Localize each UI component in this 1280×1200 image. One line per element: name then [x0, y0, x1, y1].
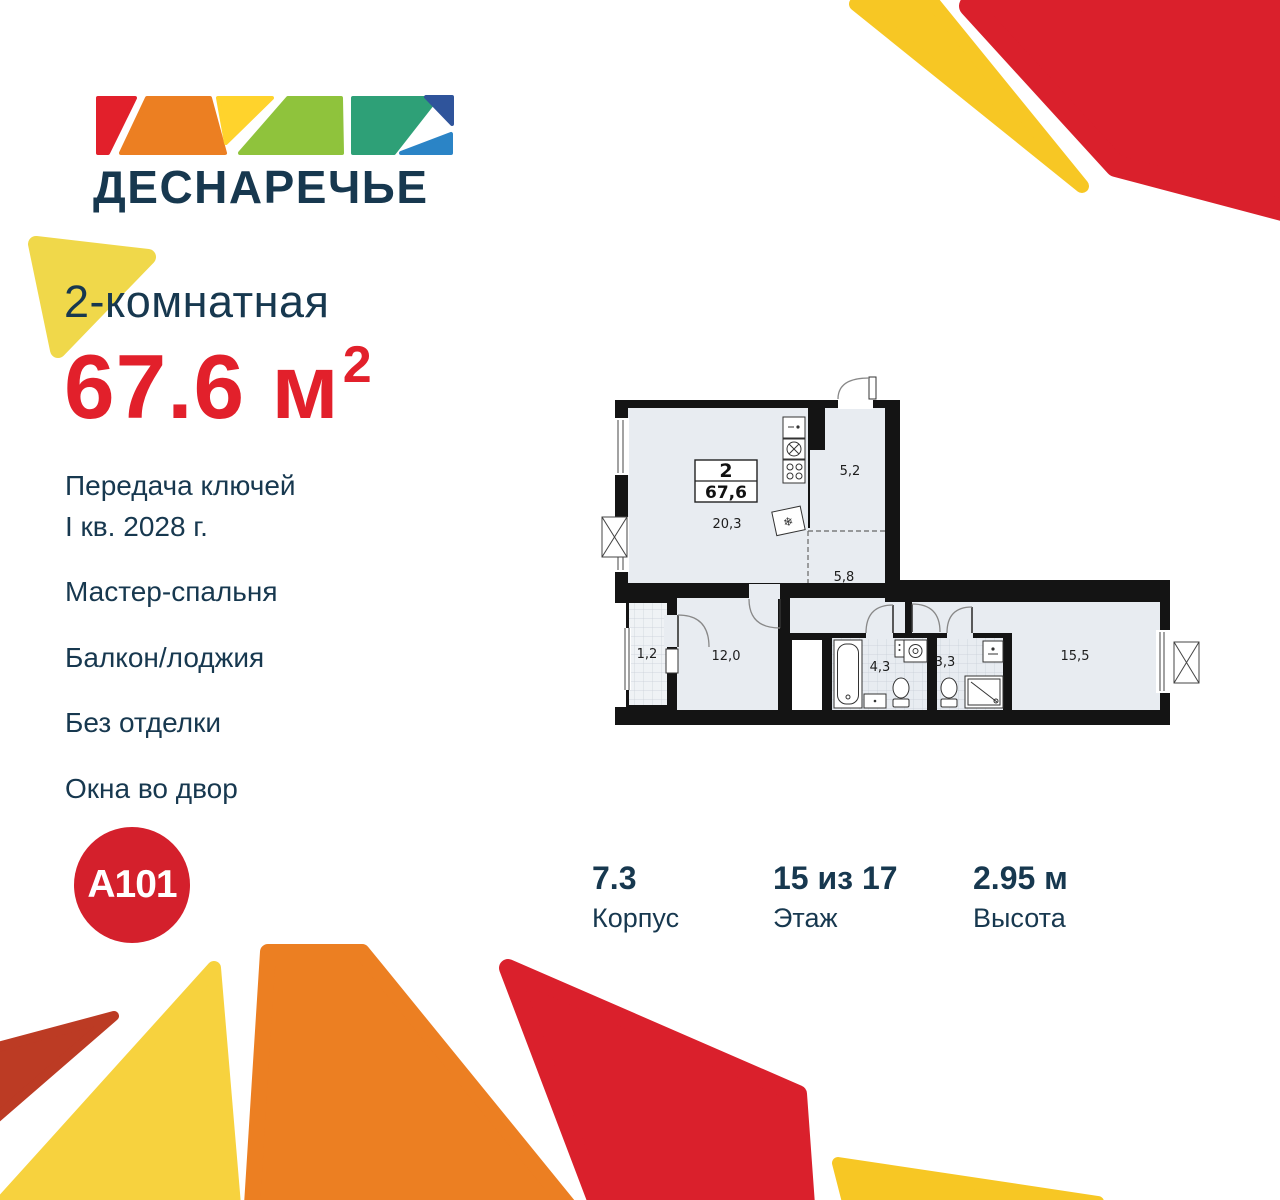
- stove-icon: [783, 460, 805, 483]
- listing-card: ДЕСНАРЕЧЬЕ 2-комнатная 67.6 м2 Передача …: [0, 0, 1280, 1200]
- logo-shape-blue-dark: [426, 97, 452, 124]
- toilet-icon: [941, 678, 957, 698]
- balcony-sill: [666, 649, 678, 673]
- feature-list: Передача ключей I кв. 2028 г. Мастер-спа…: [65, 466, 296, 810]
- stat-ceiling-height-label: Высота: [973, 903, 1068, 934]
- badge-area: 67,6: [705, 483, 747, 503]
- developer-logo-text: A101: [87, 863, 176, 907]
- area-value: 67.6: [64, 337, 245, 438]
- stat-floor-value: 15 из 17: [773, 860, 898, 897]
- feature-master-bedroom: Мастер-спальня: [65, 572, 296, 613]
- developer-logo: A101: [74, 827, 190, 943]
- area-power: 2: [343, 336, 373, 394]
- feature-no-finishing: Без отделки: [65, 703, 296, 744]
- stat-ceiling-height-value: 2.95 м: [973, 860, 1068, 897]
- feature-balcony: Балкон/лоджия: [65, 638, 296, 679]
- feature-courtyard-windows: Окна во двор: [65, 769, 296, 810]
- stat-floor-label: Этаж: [773, 903, 898, 934]
- listing-title: 2-комнатная: [64, 278, 329, 325]
- stat-ceiling-height: 2.95 м Высота: [973, 860, 1068, 934]
- room-label-bathroom-1: 4,3: [870, 660, 891, 675]
- stat-building-label: Корпус: [592, 903, 679, 934]
- room-label-bathroom-2: 3,3: [935, 655, 956, 670]
- project-logo-shapes: [95, 93, 457, 159]
- washing-machine-icon: [904, 640, 927, 662]
- stat-building: 7.3 Корпус: [592, 860, 679, 934]
- badge-rooms: 2: [719, 460, 732, 482]
- plan-area-badge: 2 67,6: [695, 460, 757, 503]
- room-label-kitchen-living: 20,3: [713, 517, 742, 532]
- toilet-icon: [893, 678, 909, 698]
- project-name: ДЕСНАРЕЧЬЕ: [93, 160, 429, 214]
- room-label-bedroom: 12,0: [712, 649, 741, 664]
- logo-shape-orange: [121, 98, 225, 153]
- floorplan: ❄: [598, 375, 1203, 730]
- feature-keys-date: Передача ключей I кв. 2028 г.: [65, 466, 296, 547]
- room-label-hall-entry: 5,2: [840, 464, 861, 479]
- stat-floor: 15 из 17 Этаж: [773, 860, 898, 934]
- room-label-master-bedroom: 15,5: [1061, 649, 1090, 664]
- area-unit: м: [271, 337, 339, 438]
- washer-shelf-icon: [895, 640, 904, 657]
- room-label-hall: 5,8: [834, 570, 855, 585]
- listing-area: 67.6 м2: [64, 342, 373, 433]
- stat-building-value: 7.3: [592, 860, 679, 897]
- room-label-balcony: 1,2: [637, 647, 658, 662]
- bathroom-sink-icon: [983, 641, 1003, 662]
